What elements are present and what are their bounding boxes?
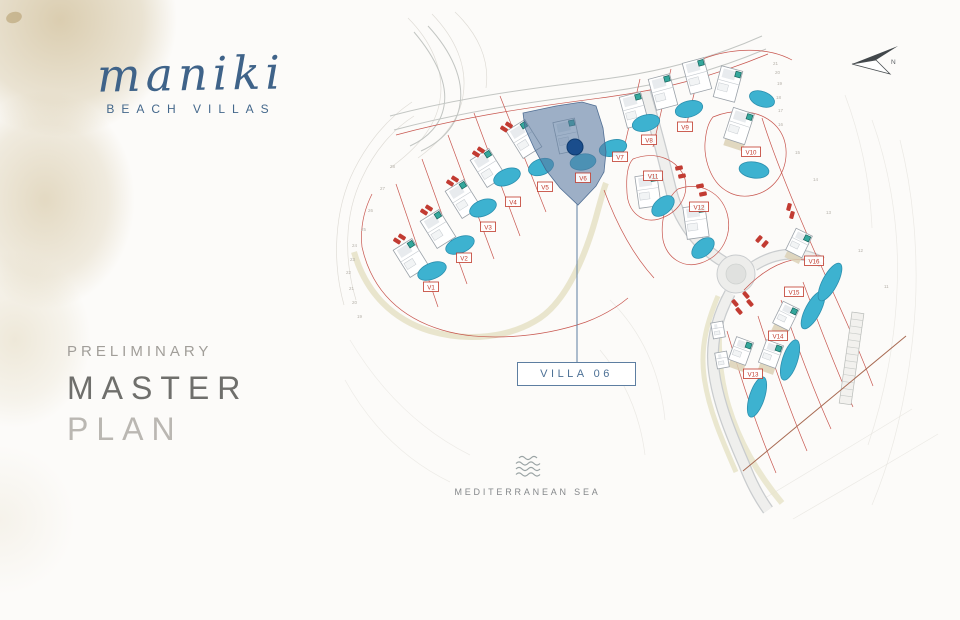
building-X2 [715, 351, 730, 369]
villa-label-V6: V6 [576, 173, 591, 183]
car [420, 208, 429, 216]
pool-V16 [814, 260, 847, 304]
brand-logo: maniki BEACH VILLAS [58, 50, 324, 116]
villa-06-callout: VILLA 06 [517, 362, 636, 386]
brand-tagline: BEACH VILLAS [58, 102, 324, 116]
svg-text:V2: V2 [460, 255, 468, 262]
elevation-label: 25 [361, 227, 367, 232]
car [735, 307, 743, 316]
elevation-label: 11 [884, 284, 889, 289]
villa-06-highlight [523, 102, 606, 205]
elevation-label: 12 [858, 248, 864, 253]
waves-icon [511, 454, 545, 478]
north-arrow-icon: N [852, 46, 898, 74]
villa-label-V5: V5 [538, 182, 553, 192]
villa-label-V13: V13 [744, 369, 763, 379]
car [761, 240, 769, 249]
elevation-label: 15 [795, 150, 801, 155]
car [789, 211, 795, 219]
building-V9 [682, 58, 712, 95]
car [451, 175, 460, 183]
car [425, 204, 434, 212]
svg-text:V14: V14 [772, 333, 784, 340]
svg-text:V12: V12 [693, 204, 705, 211]
sea-block: MEDITERRANEAN SEA [420, 454, 635, 497]
svg-text:V16: V16 [808, 258, 820, 265]
marker-layer [567, 139, 583, 155]
title-eyebrow: PRELIMINARY [67, 343, 248, 360]
elevation-label: 19 [357, 314, 363, 319]
elevation-label: 20 [352, 300, 358, 305]
building-X1 [711, 321, 726, 339]
villa-label-V10: V10 [742, 147, 761, 157]
pool-VA [747, 88, 777, 111]
elevation-label: 19 [777, 81, 783, 86]
car [699, 191, 707, 197]
elevation-label: 14 [813, 177, 819, 182]
villa-label-V8: V8 [642, 135, 657, 145]
title-line1: MASTER [67, 370, 248, 407]
car [755, 235, 763, 244]
villa-label-V16: V16 [805, 256, 824, 266]
elevation-label: 28 [390, 164, 396, 169]
svg-text:V7: V7 [616, 154, 624, 161]
elevation-label: 21 [773, 61, 779, 66]
sea-label: MEDITERRANEAN SEA [420, 487, 635, 497]
villa-label-V15: V15 [785, 287, 804, 297]
svg-text:V4: V4 [509, 199, 517, 206]
svg-text:V10: V10 [745, 149, 757, 156]
elevation-label: 23 [350, 257, 356, 262]
villa-label-V2: V2 [457, 253, 472, 263]
car [786, 203, 792, 211]
elevation-label: 16 [778, 122, 784, 127]
master-plan-page: { "brand": {"name": "maniki", "tagline":… [0, 0, 960, 540]
svg-text:V1: V1 [427, 284, 435, 291]
roundabout [717, 255, 755, 293]
pool-V10 [738, 160, 770, 180]
villa-label-V4: V4 [506, 197, 521, 207]
villa-label-V1: V1 [424, 282, 439, 292]
svg-text:V6: V6 [579, 175, 587, 182]
car [746, 299, 754, 308]
svg-text:V3: V3 [484, 224, 492, 231]
svg-text:V15: V15 [788, 289, 800, 296]
buildings-layer [393, 58, 812, 375]
elevation-label: 24 [352, 243, 358, 248]
elevation-label: 22 [346, 270, 352, 275]
brand-name: maniki [58, 48, 325, 101]
svg-text:V11: V11 [648, 173, 659, 180]
elevation-label: 20 [775, 70, 781, 75]
car [398, 233, 407, 241]
title-block: PRELIMINARY MASTER PLAN [67, 343, 248, 448]
elevation-label: 13 [826, 210, 832, 215]
villa-label-V11: V11 [644, 171, 663, 181]
svg-text:V13: V13 [747, 371, 759, 378]
svg-text:V9: V9 [681, 124, 689, 131]
pool-V9 [673, 98, 704, 121]
villa-label-V9: V9 [678, 122, 693, 132]
car [675, 165, 683, 171]
villa-06-marker [567, 139, 583, 155]
car [446, 179, 455, 187]
villa-label-V7: V7 [613, 152, 628, 162]
building-VA [713, 66, 743, 103]
car [393, 237, 402, 245]
villa-label-V14: V14 [769, 331, 788, 341]
north-label: N [891, 59, 896, 66]
building-V10 [721, 107, 754, 151]
svg-text:V5: V5 [541, 184, 549, 191]
elevation-label: 17 [778, 108, 784, 113]
elevation-label: 18 [776, 95, 782, 100]
svg-text:V8: V8 [645, 137, 653, 144]
stairs [839, 312, 864, 405]
villa-label-V3: V3 [481, 222, 496, 232]
elevation-label: 21 [349, 286, 355, 291]
elevation-label: 26 [368, 208, 374, 213]
elevation-label: 27 [380, 186, 386, 191]
villa-label-V12: V12 [690, 202, 709, 212]
title-line2: PLAN [67, 411, 248, 448]
